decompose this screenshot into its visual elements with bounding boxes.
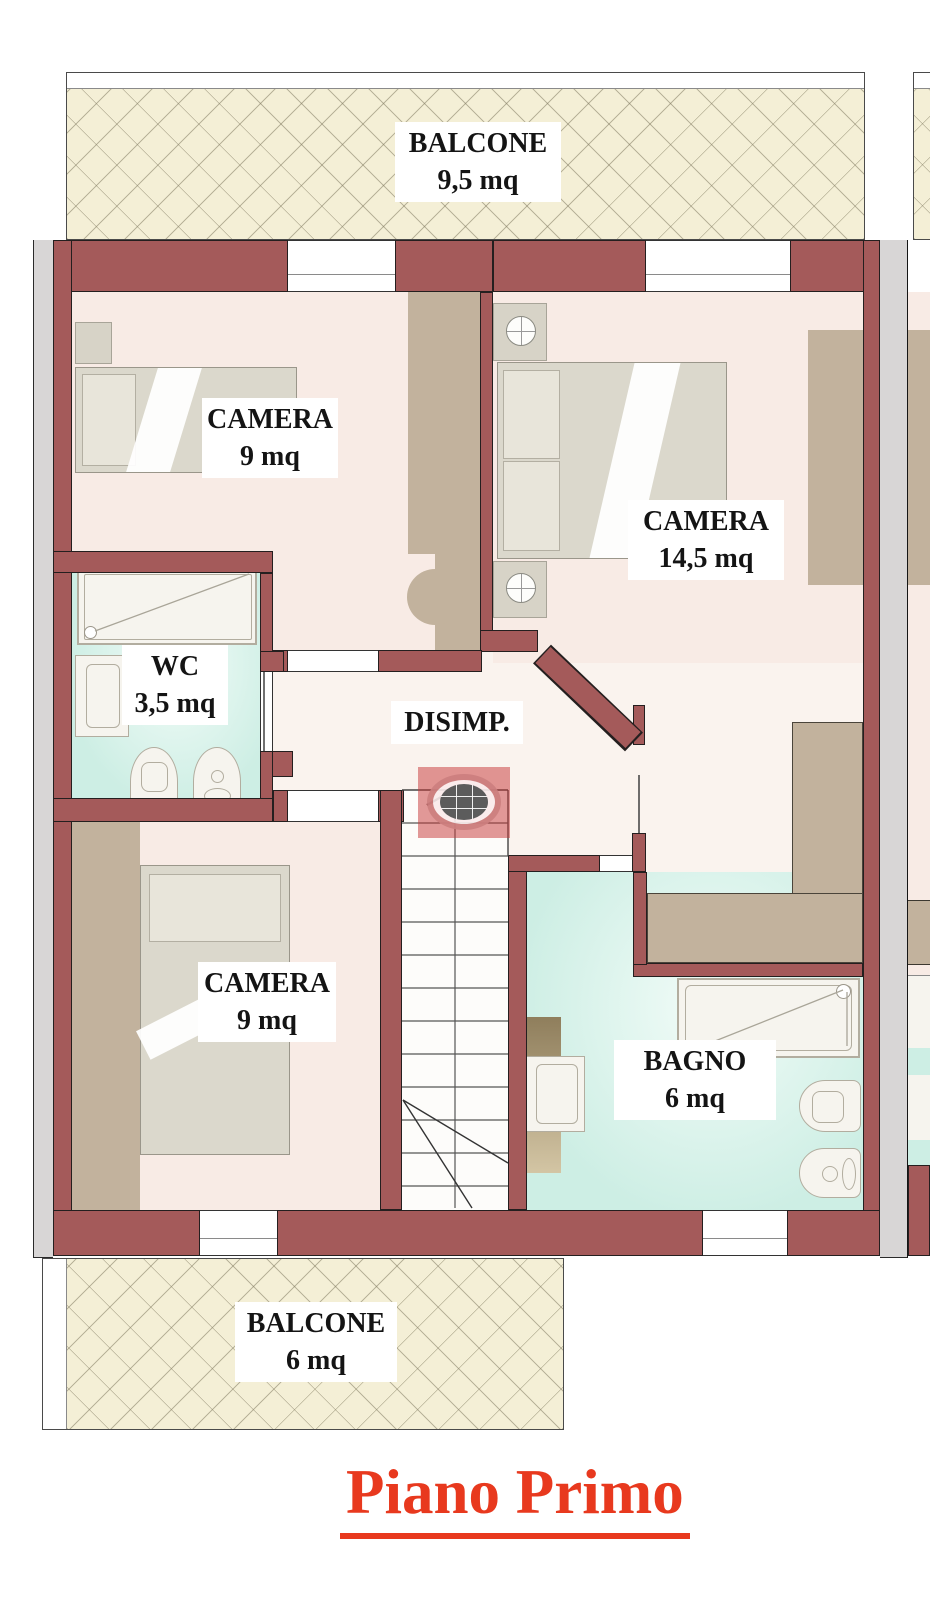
wall-top-3 [493,240,646,292]
agency-watermark-globe-icon [418,767,510,838]
room-area: 9 mq [202,1002,332,1039]
room-name: CAMERA [632,503,780,540]
room-label-wc: WC 3,5 mq [122,645,228,725]
wall-left [53,240,72,1256]
wall-bagno-door-jamb [632,833,646,872]
door-camera-top-left [288,650,378,672]
wardrobe-camera-top-left [408,292,480,554]
wardrobe-camera-top-right [808,330,863,585]
window-glass-line [200,1238,277,1239]
bidet-bagno [799,1148,861,1198]
toilet-bagno [799,1080,861,1132]
neighbor-wardrobe [908,330,930,585]
wall-wc-east-lower2 [260,751,273,800]
wardrobe-camera-bottom-left [72,822,140,1210]
wall-bottom-2 [277,1210,703,1256]
wall-wc-south [53,798,273,822]
wall-disimp-east-connector [633,872,647,965]
lamp-icon [506,573,536,603]
room-name: BAGNO [618,1043,772,1080]
wall-right [863,240,880,1256]
room-area: 6 mq [239,1342,393,1379]
neighbor-unit-sliver [908,240,930,1256]
room-area: 6 mq [618,1080,772,1117]
wall-wc-east-upper [260,573,273,653]
wall-bagno-north-left [508,855,600,872]
room-label-balcone-bottom: BALCONE 6 mq [235,1302,397,1382]
wall-bagno-north-right [633,963,863,977]
closet-disimpegno-arm [647,893,863,963]
floor-plan-canvas: BALCONE 9,5 mq CAMERA 9 mq CAMERA 14,5 m… [0,0,930,1604]
wall-camera-bl-north-a [273,790,288,822]
pillow [503,461,560,551]
room-label-balcone-top: BALCONE 9,5 mq [395,122,561,202]
bathtub-faucet [836,984,851,999]
shower-drain [84,626,97,639]
nightstand [75,322,112,364]
balcony-top-neighbor [913,72,930,240]
washbasin-wc [75,655,129,737]
room-area: 3,5 mq [126,685,224,722]
neighbor-closet-arm [908,900,930,965]
room-area: 9 mq [206,438,334,475]
window-camera-top-right [646,240,790,292]
wall-bottom-1 [53,1210,200,1256]
door-wc [260,672,273,751]
balcony-top-neighbor-railing [914,73,930,89]
window-glass-line [646,274,790,275]
room-label-camera-bottom-left: CAMERA 9 mq [198,962,336,1042]
wall-top-2 [395,240,493,292]
room-area: 9,5 mq [399,162,557,199]
party-wall-strip-right [880,240,908,1258]
room-name: DISIMP. [395,704,519,741]
window-glass-line [703,1238,787,1239]
wall-camera-tl-south-b [378,650,482,672]
room-name: WC [126,648,224,685]
wall-bottom-3 [787,1210,880,1256]
balcony-top-neighbor-paving [914,89,930,239]
window-camera-top-left [288,240,395,292]
balcony-bottom-railing [43,1259,67,1429]
room-label-camera-top-left: CAMERA 9 mq [202,398,338,478]
wall-diagonal-stub [633,705,645,745]
wall-wc-east-jamb [260,651,284,672]
pillow [503,370,560,459]
page-title: Piano Primo [340,1458,690,1539]
balcony-top-railing [67,73,864,89]
pillow [149,874,281,942]
room-name: CAMERA [202,965,332,1002]
window-camera-bottom-left [200,1210,277,1256]
door-bagno [600,855,632,872]
room-name: BALCONE [239,1305,393,1342]
door-camera-bottom-left [288,790,378,822]
wall-stair-west [380,790,402,1210]
window-bagno [703,1210,787,1256]
room-area: 14,5 mq [632,540,780,577]
shower-tray [77,567,257,645]
room-label-disimpegno: DISIMP. [391,701,523,744]
party-wall-strip-left [33,240,53,1258]
room-label-camera-top-right: CAMERA 14,5 mq [628,500,784,580]
lamp-icon [506,316,536,346]
pillow [82,374,136,466]
neighbor-wall-bottom [908,1165,930,1256]
neighbor-bath-teal1 [908,1048,930,1075]
wall-camera-divider [480,292,493,652]
wall-camera-divider-jog [480,630,538,652]
washbasin-bagno [523,1056,585,1132]
floor-stairwell [402,790,508,1210]
room-label-bagno: BAGNO 6 mq [614,1040,776,1120]
room-name: CAMERA [206,401,334,438]
wall-bagno-west [508,855,527,1210]
wardrobe-round-element [407,569,463,625]
room-name: BALCONE [399,125,557,162]
wall-top-1 [53,240,288,292]
window-glass-line [288,274,395,275]
neighbor-bath-teal2 [908,1140,930,1165]
wall-wc-north [53,551,273,573]
